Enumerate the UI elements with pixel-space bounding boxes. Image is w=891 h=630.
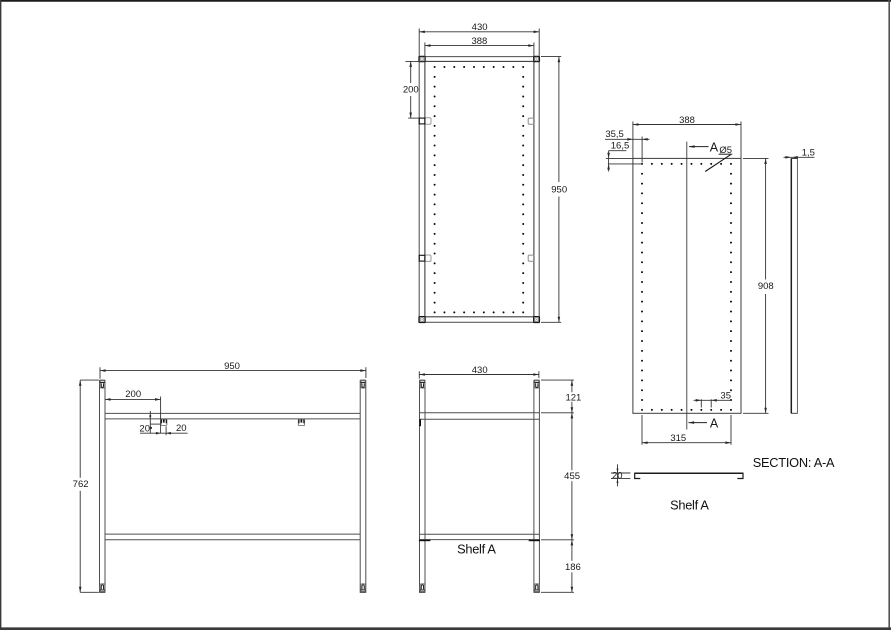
svg-text:A: A [710, 416, 719, 430]
svg-text:35,5: 35,5 [605, 129, 624, 140]
svg-text:20: 20 [612, 471, 623, 482]
svg-text:388: 388 [679, 115, 695, 126]
svg-text:908: 908 [758, 281, 774, 292]
svg-text:430: 430 [472, 365, 488, 376]
svg-text:186: 186 [565, 562, 581, 573]
svg-text:762: 762 [73, 479, 89, 490]
svg-text:Shelf A: Shelf A [457, 541, 496, 556]
svg-text:SECTION: A-A: SECTION: A-A [753, 455, 835, 470]
svg-text:35: 35 [720, 391, 731, 402]
svg-text:20: 20 [139, 423, 150, 434]
svg-text:1,5: 1,5 [802, 147, 815, 158]
svg-text:430: 430 [472, 22, 488, 33]
svg-text:950: 950 [551, 184, 567, 195]
svg-text:Shelf A: Shelf A [670, 498, 709, 513]
svg-text:950: 950 [224, 361, 240, 372]
svg-text:455: 455 [564, 471, 580, 482]
svg-text:16,5: 16,5 [611, 141, 630, 152]
svg-text:20: 20 [176, 423, 187, 434]
svg-text:315: 315 [670, 433, 686, 444]
svg-text:388: 388 [471, 36, 487, 47]
svg-text:A: A [710, 141, 719, 155]
svg-text:121: 121 [565, 392, 581, 403]
svg-text:200: 200 [125, 389, 141, 400]
svg-text:200: 200 [403, 85, 419, 96]
